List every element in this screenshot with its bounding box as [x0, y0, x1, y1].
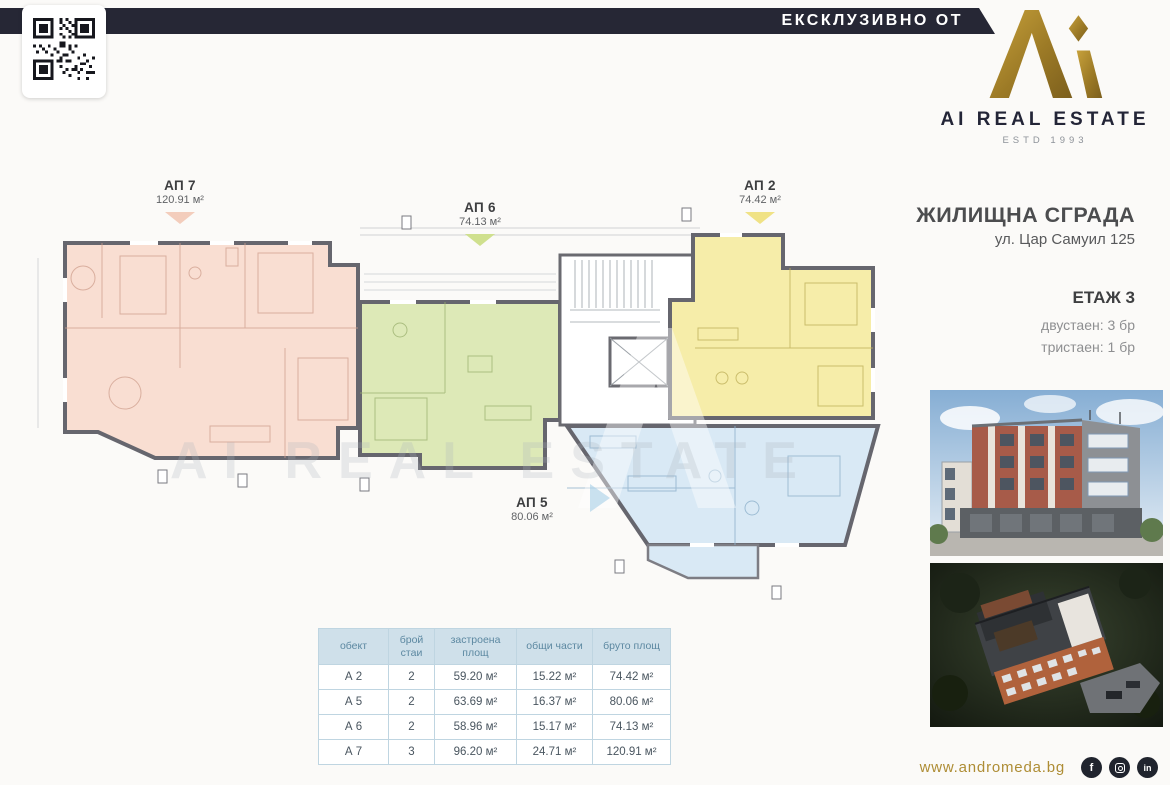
project-address: ул. Цар Самуил 125 [916, 231, 1135, 248]
cell-built-area: 58.96 м² [435, 715, 517, 740]
cell-rooms: 3 [389, 740, 435, 765]
building-render-night-image [930, 563, 1163, 727]
apartment-label: АП 6 [425, 200, 535, 215]
cell-built-area: 63.69 м² [435, 690, 517, 715]
instagram-icon[interactable] [1109, 757, 1130, 778]
qr-code [22, 5, 106, 98]
table-header-row: обект брой стаи застроена площ общи част… [319, 629, 671, 665]
column-header: общи части [517, 629, 593, 665]
cell-rooms: 2 [389, 715, 435, 740]
website-link[interactable]: www.andromeda.bg [920, 759, 1065, 776]
column-header: бруто площ [593, 629, 671, 665]
floor-plan: AI REAL ESTATE АП 7 120.91 м² АП 6 74.13… [30, 178, 920, 604]
cell-common-area: 24.71 м² [517, 740, 593, 765]
apartment-label: АП 5 [477, 495, 587, 510]
table-row: А 5 2 63.69 м² 16.37 м² 80.06 м² [319, 690, 671, 715]
apartment-area: 74.13 м² [425, 216, 535, 228]
apartment-label: АП 7 [125, 178, 235, 193]
cell-unit: А 7 [319, 740, 389, 765]
brand-estd: ESTD 1993 [935, 135, 1155, 146]
building-render-day-image [930, 390, 1163, 556]
project-title: ЖИЛИЩНА СГРАДА [916, 203, 1135, 228]
apartment-area: 80.06 м² [477, 511, 587, 523]
apartment-spec-table: обект брой стаи застроена площ общи част… [318, 628, 671, 765]
plan-watermark: AI REAL ESTATE [170, 432, 813, 490]
cell-common-area: 15.17 м² [517, 715, 593, 740]
cell-gross-area: 80.06 м² [593, 690, 671, 715]
exclusive-banner: ЕКСКЛУЗИВНО ОТ [0, 8, 995, 34]
project-info: ЖИЛИЩНА СГРАДА ул. Цар Самуил 125 ЕТАЖ 3… [916, 203, 1135, 358]
apartment-callout-ap2: АП 2 74.42 м² [705, 178, 815, 224]
cell-unit: А 6 [319, 715, 389, 740]
building-render-day [930, 390, 1163, 556]
cell-common-area: 15.22 м² [517, 665, 593, 690]
brand-logo-block: AI REAL ESTATE ESTD 1993 [935, 10, 1155, 146]
apartment-callout-ap6: АП 6 74.13 м² [425, 200, 535, 246]
floor-label: ЕТАЖ 3 [916, 288, 1135, 308]
callout-pointer-icon [465, 234, 495, 246]
apartment-callout-ap5: АП 5 80.06 м² [477, 495, 587, 523]
linkedin-icon[interactable]: in [1137, 757, 1158, 778]
apartment-area: 74.42 м² [705, 194, 815, 206]
apartment-callout-ap7: АП 7 120.91 м² [125, 178, 235, 224]
watermark-chevron [590, 484, 610, 512]
unit-mix-line: тристаен: 1 бр [916, 337, 1135, 359]
cell-common-area: 16.37 м² [517, 690, 593, 715]
cell-unit: А 5 [319, 690, 389, 715]
column-header: застроена площ [435, 629, 517, 665]
table-row: А 6 2 58.96 м² 15.17 м² 74.13 м² [319, 715, 671, 740]
callout-pointer-icon [165, 212, 195, 224]
callout-pointer-icon [745, 212, 775, 224]
unit-mix-line: двустаен: 3 бр [916, 315, 1135, 337]
building-render-night [930, 563, 1163, 727]
cell-gross-area: 120.91 м² [593, 740, 671, 765]
cell-gross-area: 74.13 м² [593, 715, 671, 740]
apartment-label: АП 2 [705, 178, 815, 193]
cell-gross-area: 74.42 м² [593, 665, 671, 690]
footer: www.andromeda.bg f in [920, 757, 1158, 778]
cell-rooms: 2 [389, 665, 435, 690]
facebook-icon[interactable]: f [1081, 757, 1102, 778]
cell-built-area: 96.20 м² [435, 740, 517, 765]
cell-built-area: 59.20 м² [435, 665, 517, 690]
table-row: А 2 2 59.20 м² 15.22 м² 74.42 м² [319, 665, 671, 690]
brand-name: AI REAL ESTATE [935, 109, 1155, 131]
qr-code-pattern [33, 18, 95, 80]
column-header: обект [319, 629, 389, 665]
brand-monogram-icon [983, 10, 1107, 98]
column-header: брой стаи [389, 629, 435, 665]
cell-unit: А 2 [319, 665, 389, 690]
cell-rooms: 2 [389, 690, 435, 715]
table-row: А 7 3 96.20 м² 24.71 м² 120.91 м² [319, 740, 671, 765]
apartment-area: 120.91 м² [125, 194, 235, 206]
